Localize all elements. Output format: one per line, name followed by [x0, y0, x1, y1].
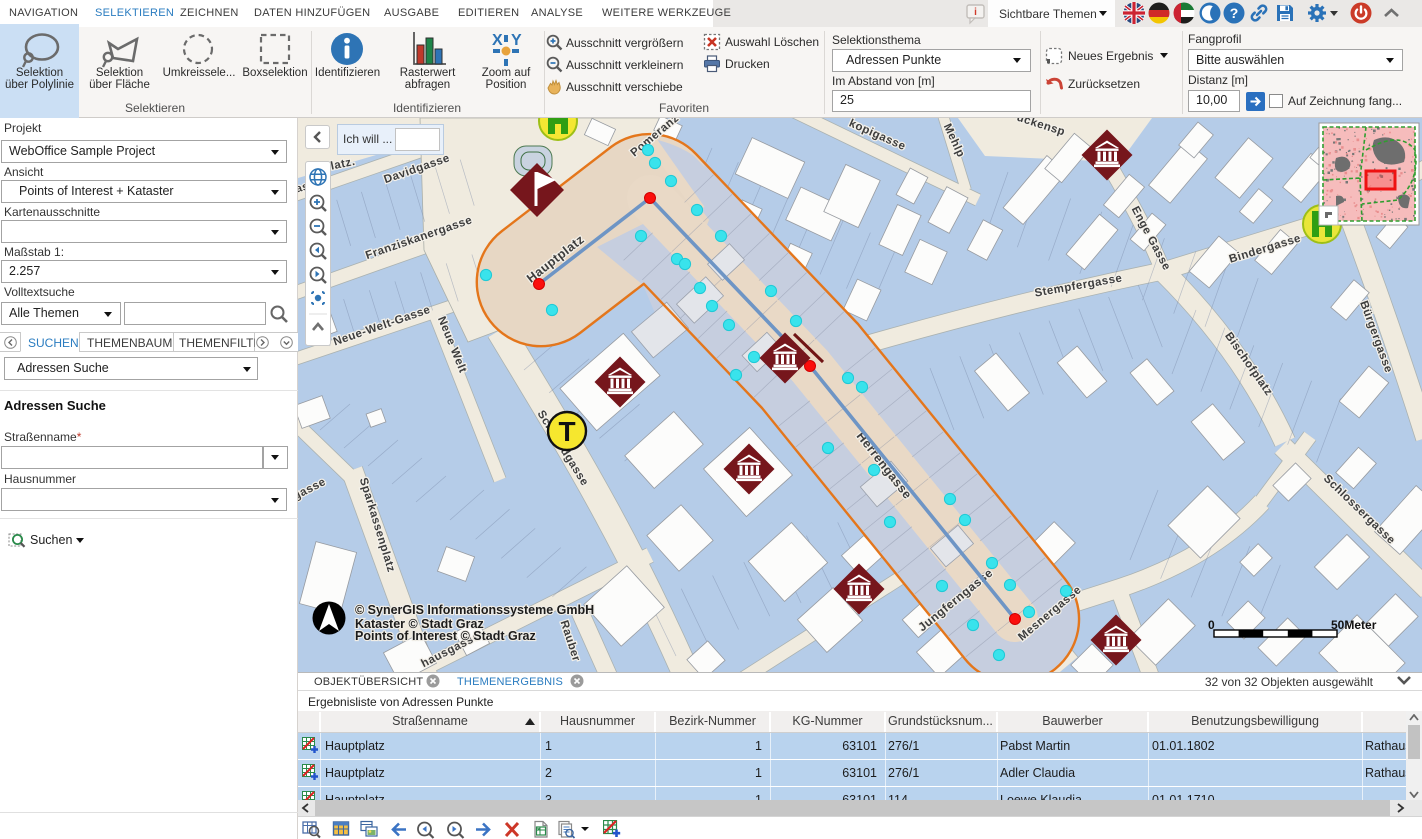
svg-text:Y: Y — [511, 32, 522, 49]
svg-text:© SynerGIS Informationssysteme: © SynerGIS Informationssysteme GmbH — [355, 603, 594, 617]
svg-text:?: ? — [1230, 5, 1239, 21]
svg-text:X: X — [492, 32, 503, 49]
svg-text:T: T — [558, 416, 575, 447]
svg-text:50Meter: 50Meter — [1331, 618, 1377, 632]
svg-text:Points of Interest © Stadt Gra: Points of Interest © Stadt Graz — [355, 629, 536, 643]
svg-text:i: i — [974, 7, 977, 18]
